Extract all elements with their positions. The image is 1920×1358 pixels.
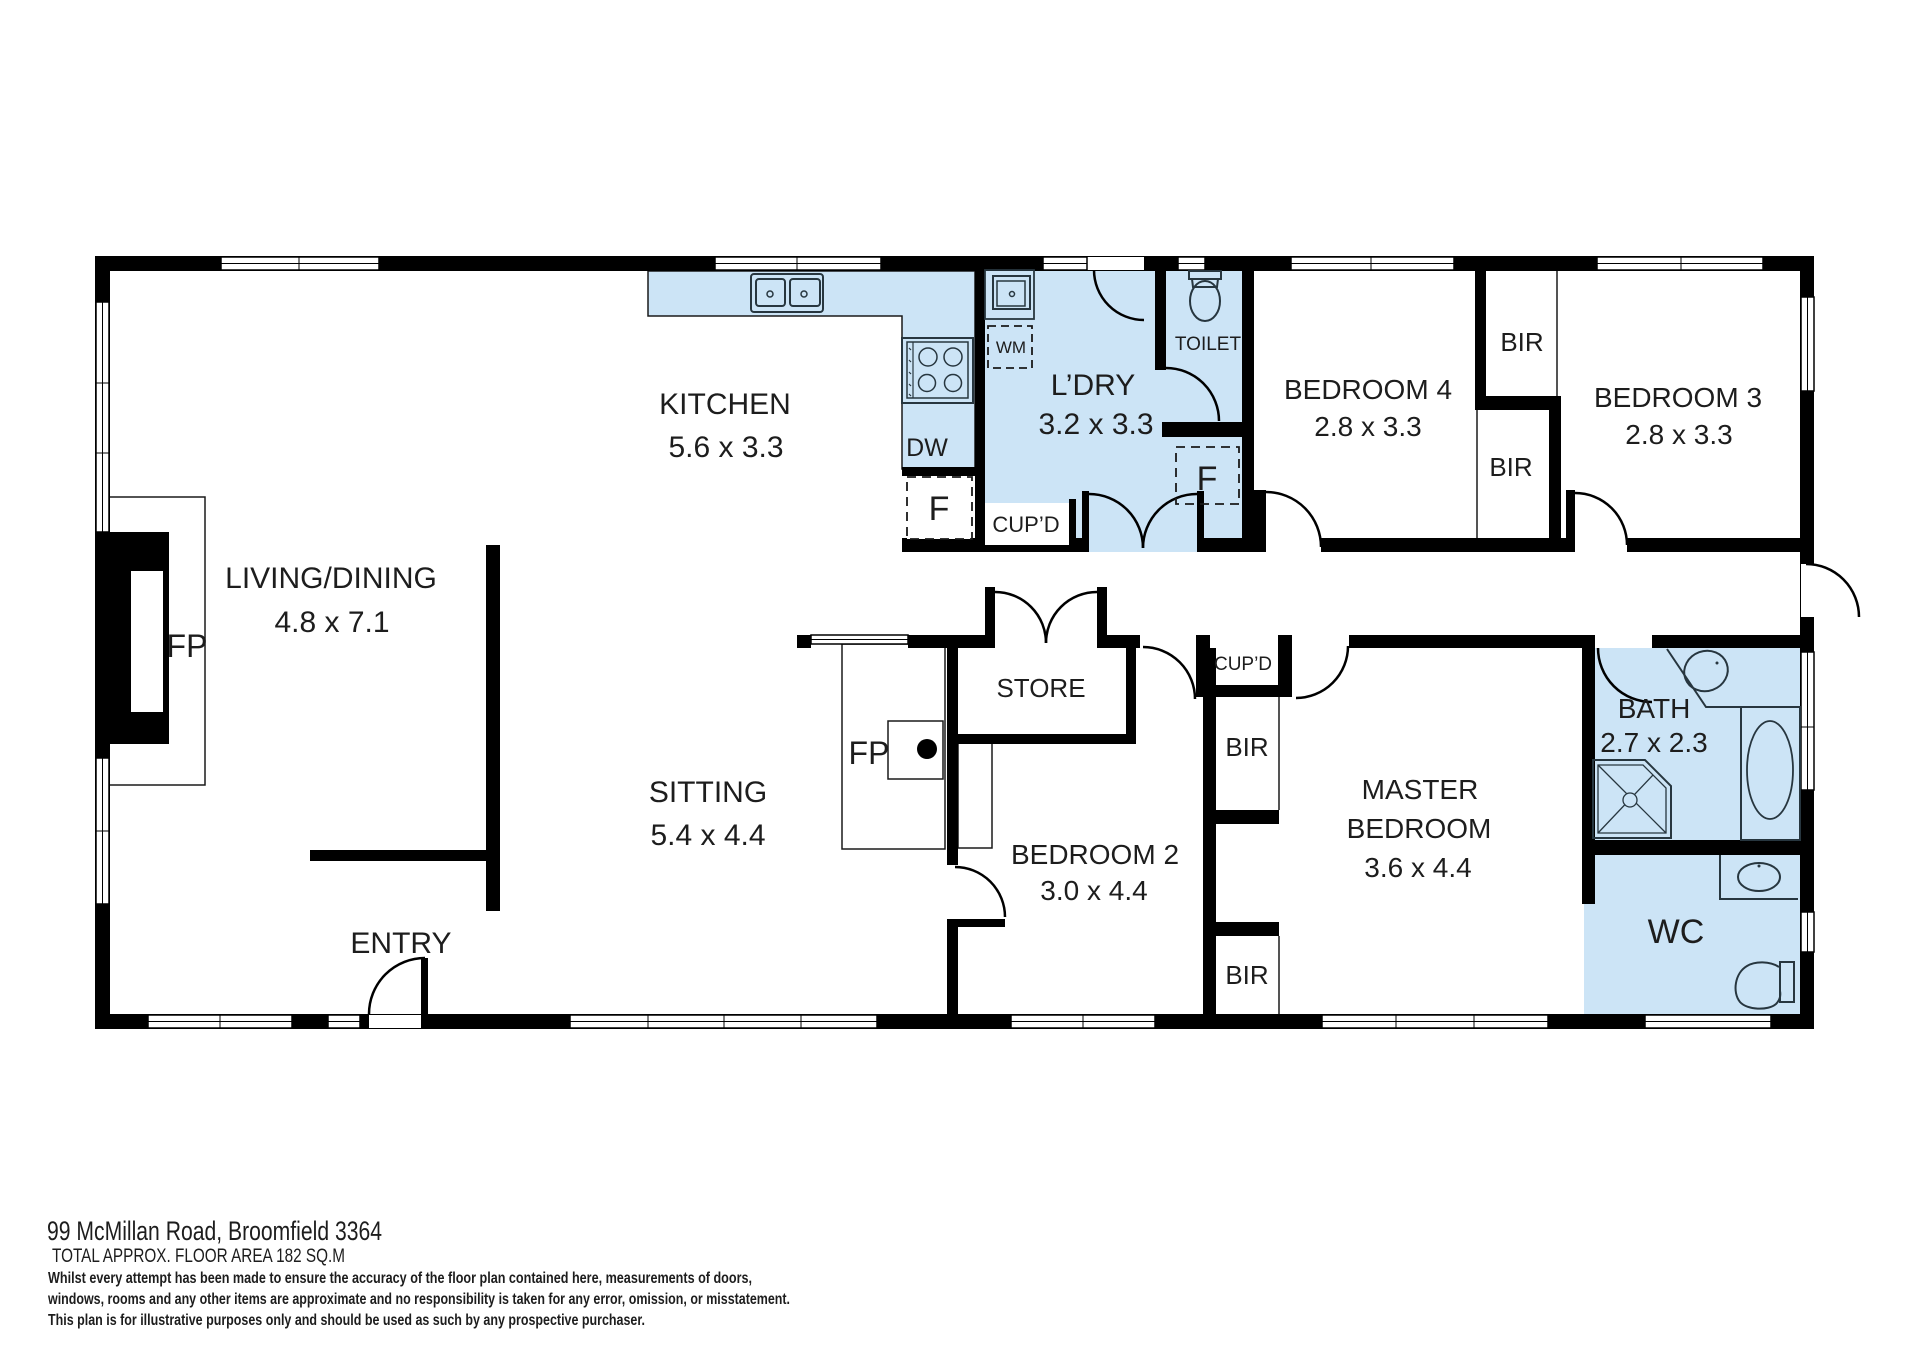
svg-text:FP: FP (849, 735, 890, 771)
svg-text:5.4 x 4.4: 5.4 x 4.4 (650, 819, 765, 852)
svg-text:BIR: BIR (1500, 327, 1543, 357)
svg-text:BEDROOM: BEDROOM (1347, 813, 1492, 844)
svg-text:3.0 x 4.4: 3.0 x 4.4 (1040, 875, 1147, 906)
svg-text:BEDROOM 3: BEDROOM 3 (1594, 382, 1762, 413)
svg-text:ENTRY: ENTRY (350, 927, 451, 960)
svg-text:BIR: BIR (1225, 732, 1268, 762)
svg-text:MASTER: MASTER (1362, 774, 1479, 805)
svg-text:F: F (929, 490, 950, 528)
svg-text:3.2 x 3.3: 3.2 x 3.3 (1038, 408, 1153, 441)
svg-text:4.8 x 7.1: 4.8 x 7.1 (274, 606, 389, 639)
svg-text:TOILET: TOILET (1175, 334, 1242, 355)
svg-text:TOTAL APPROX. FLOOR AREA 182 S: TOTAL APPROX. FLOOR AREA 182 SQ.M (52, 1246, 345, 1267)
svg-text:This plan is for illustrative: This plan is for illustrative purposes o… (48, 1312, 645, 1329)
svg-text:LIVING/DINING: LIVING/DINING (225, 562, 437, 595)
svg-text:L’DRY: L’DRY (1051, 369, 1136, 402)
svg-text:KITCHEN: KITCHEN (659, 388, 791, 421)
svg-text:CUP’D: CUP’D (992, 512, 1059, 537)
svg-text:SITTING: SITTING (649, 776, 767, 809)
svg-text:BIR: BIR (1225, 960, 1268, 990)
svg-text:3.6 x 4.4: 3.6 x 4.4 (1364, 852, 1471, 883)
svg-text:FP: FP (167, 628, 208, 664)
svg-text:Whilst every attempt has been: Whilst every attempt has been made to en… (48, 1270, 752, 1287)
svg-text:BIR: BIR (1489, 452, 1532, 482)
svg-text:CUP’D: CUP’D (1214, 654, 1272, 675)
svg-text:F: F (1197, 460, 1218, 498)
svg-text:5.6 x 3.3: 5.6 x 3.3 (668, 431, 783, 464)
svg-text:WC: WC (1648, 913, 1705, 951)
svg-text:BEDROOM 2: BEDROOM 2 (1011, 839, 1179, 870)
svg-text:DW: DW (906, 434, 948, 462)
svg-text:99 McMillan Road, Broomfield 3: 99 McMillan Road, Broomfield 3364 (47, 1216, 382, 1246)
svg-text:STORE: STORE (996, 673, 1085, 703)
svg-text:2.8 x 3.3: 2.8 x 3.3 (1625, 419, 1732, 450)
svg-text:WM: WM (996, 338, 1026, 357)
svg-text:2.7 x 2.3: 2.7 x 2.3 (1600, 727, 1707, 758)
svg-text:2.8 x 3.3: 2.8 x 3.3 (1314, 411, 1421, 442)
svg-text:BATH: BATH (1618, 693, 1691, 724)
svg-text:windows, rooms and any other i: windows, rooms and any other items are a… (47, 1291, 790, 1308)
svg-text:BEDROOM 4: BEDROOM 4 (1284, 374, 1452, 405)
